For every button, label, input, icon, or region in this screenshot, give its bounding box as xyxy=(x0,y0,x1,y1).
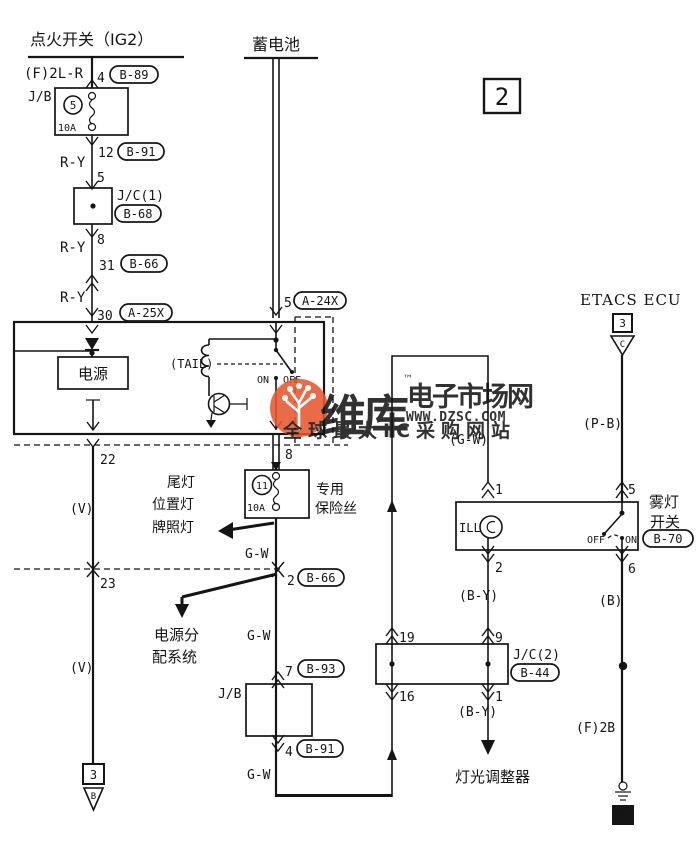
fog-label-1: 雾灯 xyxy=(649,493,679,511)
etacs-terminal-code: C xyxy=(620,340,625,350)
pin-7: 7 xyxy=(285,665,293,680)
svg-text:B-66: B-66 xyxy=(307,571,336,585)
wire-label-gw-2: G-W xyxy=(247,629,271,644)
svg-text:B-89: B-89 xyxy=(120,68,149,82)
power-source-label: 电源 xyxy=(78,365,108,383)
svg-text:B-70: B-70 xyxy=(654,532,683,546)
jc2-label: J/C(2) xyxy=(513,648,560,663)
pin-8-unit: 8 xyxy=(285,448,293,463)
wire-label-gw-1: G-W xyxy=(245,547,269,562)
wire-label-pb: (P-B) xyxy=(583,417,622,432)
pin-4-b91: 4 xyxy=(285,745,293,760)
fuse-11-number: 11 xyxy=(256,481,268,492)
terminal-code: B xyxy=(91,792,96,802)
svg-text:B-91: B-91 xyxy=(306,742,335,756)
wire-label-f2lr: (F)2L-R xyxy=(24,66,84,82)
on-label: ON xyxy=(257,375,269,386)
wire-label-by-2: (B-Y) xyxy=(458,705,497,720)
pin-23: 23 xyxy=(100,577,116,592)
distribution-label-2: 配系统 xyxy=(152,648,197,666)
fuse-name-line1: 专用 xyxy=(316,482,344,498)
fog-label-2: 开关 xyxy=(650,513,680,531)
wiring-diagram: 点火开关（IG2） (F)2L-R 4 B-89 J/B 5 10A 12 B-… xyxy=(0,0,700,850)
pin-5-battery: 5 xyxy=(284,296,292,311)
svg-text:B-93: B-93 xyxy=(307,662,336,676)
etacs-terminal-number: 3 xyxy=(619,317,626,330)
svg-text:A-24X: A-24X xyxy=(302,294,339,308)
ill-label: ILL xyxy=(459,521,481,535)
wire-label-ry-3: R-Y xyxy=(60,290,86,306)
fuse-11-amp: 10A xyxy=(247,503,265,514)
ground-terminal-6: 6 xyxy=(612,805,634,825)
fuse-name-line2: 保险丝 xyxy=(315,501,357,517)
tail-lamp-label: 尾灯 xyxy=(167,475,195,491)
fuse-amp: 10A xyxy=(58,123,76,134)
svg-text:A-25X: A-25X xyxy=(128,306,165,320)
ignition-title: 点火开关（IG2） xyxy=(30,30,153,49)
pin-8: 8 xyxy=(97,233,105,248)
pin-12: 12 xyxy=(98,146,114,161)
wire-label-v-2: (V) xyxy=(70,661,93,676)
pin-2-b66: 2 xyxy=(287,574,295,589)
svg-text:B-91: B-91 xyxy=(127,145,156,159)
pin-16: 16 xyxy=(399,690,415,705)
pin-4: 4 xyxy=(97,71,105,86)
pin-2-ill: 2 xyxy=(495,561,503,576)
pin-22: 22 xyxy=(100,453,116,468)
pin-1-ill: 1 xyxy=(495,483,503,498)
pin-6-fog: 6 xyxy=(628,562,636,577)
wire-label-v-1: (V) xyxy=(70,502,93,517)
pin-31: 31 xyxy=(99,259,115,274)
pin-1-jc2: 1 xyxy=(495,690,503,705)
fuse-number: 5 xyxy=(70,99,77,112)
position-lamp-label: 位置灯 xyxy=(152,497,194,513)
connector-label-b68: B-68 xyxy=(124,207,153,221)
wire-label-f2b: (F)2B xyxy=(576,721,615,736)
wire-label-by-1: (B-Y) xyxy=(459,589,498,604)
jb-label: J/B xyxy=(28,90,52,105)
terminal-number: 3 xyxy=(90,768,97,782)
watermark-slogan: 全球最大IC采购网站 xyxy=(282,419,516,442)
fog-off-label: OFF xyxy=(587,535,605,546)
etacs-title: ETACS ECU xyxy=(580,291,682,309)
connector-label-b44: B-44 xyxy=(521,666,550,680)
battery-title: 蓄电池 xyxy=(252,35,300,54)
page-number: 2 xyxy=(495,83,509,111)
distribution-label-1: 电源分 xyxy=(154,626,199,644)
pin-5-fog: 5 xyxy=(628,483,636,498)
jb2-label: J/B xyxy=(218,687,242,702)
wire-label-ry-2: R-Y xyxy=(60,240,86,256)
jc1-label: J/C(1) xyxy=(117,189,164,204)
load-label: 灯光调整器 xyxy=(455,768,530,786)
pin-5: 5 xyxy=(97,171,105,186)
license-lamp-label: 牌照灯 xyxy=(152,519,194,536)
wire-label-b: (B) xyxy=(599,594,622,609)
wire-label-gw-3: G-W xyxy=(247,768,271,783)
fog-on-label: ON xyxy=(625,535,637,546)
wire-label-ry-1: R-Y xyxy=(60,155,86,171)
watermark-title: 电子市场网 xyxy=(407,381,533,413)
svg-text:B-66: B-66 xyxy=(130,257,159,271)
junction-dot xyxy=(619,662,627,670)
tail-relay-label: (TAIL) xyxy=(170,357,213,371)
ground-terminal-number: 6 xyxy=(619,808,627,824)
